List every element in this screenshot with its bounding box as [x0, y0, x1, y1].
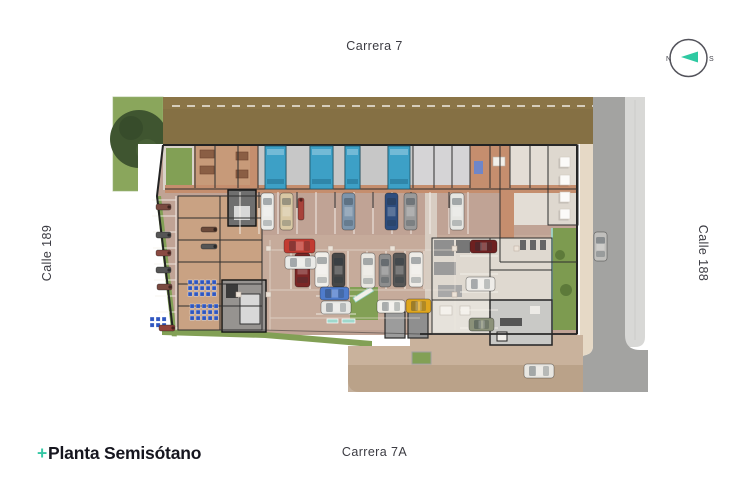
column: [514, 246, 519, 251]
car: [280, 193, 293, 230]
motorcycle: [159, 325, 175, 331]
car: [524, 364, 554, 378]
motorcycle: [156, 267, 171, 273]
column: [452, 292, 457, 297]
car: [470, 240, 497, 253]
courtyard-right: [552, 228, 578, 330]
car: [404, 193, 417, 230]
water-tank: [310, 146, 333, 189]
water-tank: [345, 146, 360, 189]
car: [409, 252, 423, 287]
street-label-calle189: Calle 189: [40, 213, 54, 293]
motorcycle: [156, 232, 171, 238]
floorplan-drawing: [0, 0, 749, 500]
table: [559, 209, 571, 221]
title-text: Planta Semisótano: [48, 443, 201, 463]
street-label-carrera7: Carrera 7: [0, 39, 749, 53]
car: [342, 193, 355, 230]
motorcycle: [298, 198, 304, 220]
street-label-calle188: Calle 188: [696, 213, 710, 293]
bike-rack: [188, 280, 216, 296]
water-tank: [265, 146, 286, 189]
car: [321, 301, 351, 314]
plaza-planter: [412, 352, 431, 364]
column: [236, 292, 241, 297]
car: [393, 253, 406, 287]
car: [261, 193, 274, 230]
car: [332, 253, 345, 287]
machine-rooms: [413, 146, 470, 189]
compass-south: S: [709, 56, 714, 63]
floorplan-page: N S Carrera 7 Carrera 7A Calle 189 Calle…: [0, 0, 749, 500]
column: [390, 246, 395, 251]
car: [469, 318, 494, 331]
speed-bump: [327, 319, 338, 323]
ramp: [385, 312, 405, 338]
title-plus-icon: +: [37, 443, 47, 463]
table: [559, 192, 571, 204]
motorcycle: [201, 227, 217, 232]
motorcycle: [157, 284, 172, 290]
interior-grass-corner: [166, 148, 192, 186]
car: [466, 277, 495, 291]
car: [315, 252, 329, 287]
car: [285, 256, 316, 269]
speed-bump: [342, 319, 355, 323]
car: [450, 193, 464, 230]
sidewalk-curb: [580, 144, 593, 364]
car: [284, 239, 315, 253]
motorcycle: [201, 244, 217, 249]
water-tank: [388, 146, 410, 189]
compass-arrow: [681, 52, 698, 63]
column: [452, 246, 457, 251]
car: [379, 254, 391, 287]
car: [594, 232, 607, 261]
table: [559, 175, 571, 187]
table: [559, 157, 571, 169]
compass: N S: [650, 25, 730, 95]
page-title: +Planta Semisótano: [37, 443, 201, 464]
car: [361, 253, 375, 288]
compass-north: N: [666, 56, 671, 63]
motorcycle: [156, 204, 171, 210]
car: [385, 193, 398, 230]
column: [328, 246, 333, 251]
motorcycle: [156, 250, 171, 256]
car: [406, 299, 431, 313]
column: [266, 292, 271, 297]
car: [320, 287, 349, 300]
bike-rack: [190, 304, 218, 320]
column: [266, 246, 271, 251]
car: [377, 300, 405, 313]
